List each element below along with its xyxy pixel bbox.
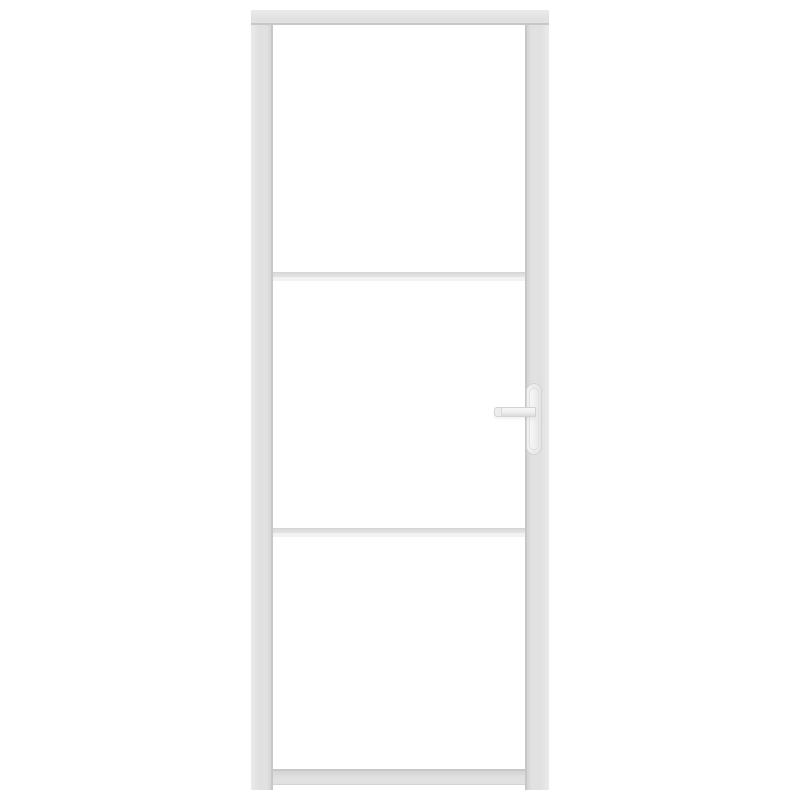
product-photo-canvas bbox=[0, 0, 800, 800]
door-handle-backplate bbox=[526, 383, 542, 455]
door-handle-lever bbox=[494, 407, 536, 417]
glass-door bbox=[251, 10, 549, 790]
glazing-bar-lower bbox=[272, 528, 528, 537]
glass-panel-top bbox=[275, 27, 525, 272]
door-frame-left-stile bbox=[251, 10, 273, 790]
glass-panel-bottom bbox=[275, 541, 525, 769]
door-frame-top-rail bbox=[251, 10, 549, 25]
door-frame-bottom-rail bbox=[271, 769, 529, 785]
glass-panel-middle bbox=[275, 285, 525, 528]
glazing-bar-upper bbox=[272, 272, 528, 281]
door-handle-backplate-inner bbox=[529, 388, 539, 450]
